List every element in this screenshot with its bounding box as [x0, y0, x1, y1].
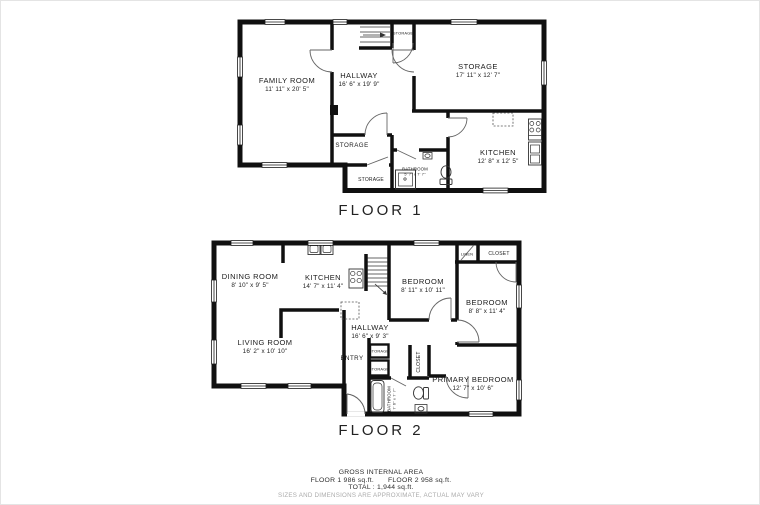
disclaimer-text: SIZES AND DIMENSIONS ARE APPROXIMATE, AC…: [1, 492, 760, 499]
sink-icon: [423, 153, 432, 160]
room-label-living-room: LIVING ROOM 16' 2" x 10' 10": [238, 338, 293, 356]
wall-chimney-stub: [330, 105, 338, 115]
floor2-title: FLOOR 2: [338, 422, 423, 439]
counter-dashed-icon: [493, 113, 513, 126]
room-label-storage-b: STORAGE: [369, 366, 389, 371]
bathtub-icon: [371, 381, 384, 413]
room-label-bathroom-f2: BATHROOM 7' 6" x 7' 7": [387, 386, 398, 412]
room-label-kitchen-f1: KITCHEN 12' 8" x 12' 5": [477, 148, 518, 166]
room-label-entry: ENTRY: [340, 355, 363, 363]
room-label-storage-mid: STORAGE: [335, 142, 368, 150]
stove-icon: [529, 119, 542, 140]
room-label-dining-room: DINING ROOM 8' 10" x 9' 5": [222, 272, 279, 290]
stove-icon: [349, 269, 363, 288]
total-area: TOTAL : 1,944 sq.ft.: [1, 484, 760, 491]
gross-internal-area-title: GROSS INTERNAL AREA: [1, 469, 760, 476]
room-label-storage-lower: STORAGE: [358, 177, 384, 184]
room-label-storage-upper: STORAGE 17' 11" x 12' 7": [456, 62, 500, 80]
floor1-plan: [237, 19, 549, 203]
stairs-icon: [360, 27, 390, 42]
floorplan-page: FAMILY ROOM 11' 11" x 20' 5" HALLWAY 16'…: [0, 0, 760, 505]
room-label-storage-a: STORAGE: [369, 348, 389, 353]
room-label-linen: LINEN: [461, 251, 473, 256]
stairs-icon: [368, 258, 388, 293]
entry-door-arc: [347, 394, 365, 414]
room-label-closet-side: CLOSET: [416, 351, 423, 372]
room-label-hallway-f1: HALLWAY 16' 6" x 19' 9": [338, 71, 379, 89]
room-label-hallway-f2: HALLWAY 16' 6" x 9' 3": [351, 323, 389, 341]
room-label-primary-bedroom: PRIMARY BEDROOM 12' 7" x 10' 6": [432, 375, 514, 393]
toilet-icon: [440, 166, 452, 185]
room-label-bathroom-f1: BATHROOM 5' 7" x 7' 7": [402, 167, 428, 178]
floor2-area: FLOOR 2 958 sq.ft.: [388, 477, 451, 484]
room-label-bedroom2: BEDROOM 8' 8" x 11' 4": [466, 298, 508, 316]
room-label-kitchen-f2: KITCHEN 14' 7" x 11' 4": [303, 273, 344, 291]
floor1-title: FLOOR 1: [338, 202, 423, 219]
room-label-stair-closet: STORAGE: [393, 30, 413, 35]
cabinet-icon: [529, 142, 542, 165]
floor-areas-line: FLOOR 1 986 sq.ft.FLOOR 2 958 sq.ft.: [1, 477, 760, 484]
floor1-area: FLOOR 1 986 sq.ft.: [311, 477, 374, 484]
toilet-icon: [414, 387, 429, 399]
room-label-family-room: FAMILY ROOM 11' 11" x 20' 5": [259, 76, 315, 94]
room-label-closet-top: CLOSET: [488, 251, 509, 258]
room-label-bedroom1: BEDROOM 8' 11" x 10' 11": [401, 277, 445, 295]
entry-door-gap: [347, 412, 365, 417]
